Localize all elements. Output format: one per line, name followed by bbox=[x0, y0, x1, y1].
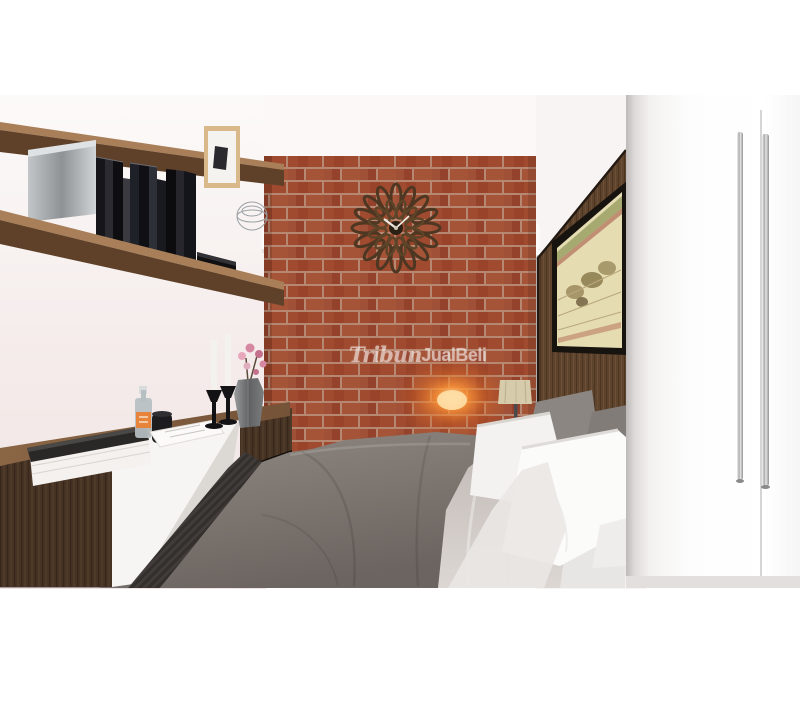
wardrobe-handle-right bbox=[762, 134, 769, 486]
wardrobe-handle-left bbox=[737, 132, 743, 480]
framed-artwork-small bbox=[204, 126, 240, 188]
wardrobe bbox=[626, 95, 800, 588]
photo-area bbox=[0, 0, 800, 720]
scene-graphic bbox=[0, 0, 800, 720]
wall-above-brick bbox=[264, 95, 538, 159]
bedroom-render-photo: TribunJualBeli bbox=[0, 0, 800, 720]
metal-box bbox=[28, 140, 96, 222]
